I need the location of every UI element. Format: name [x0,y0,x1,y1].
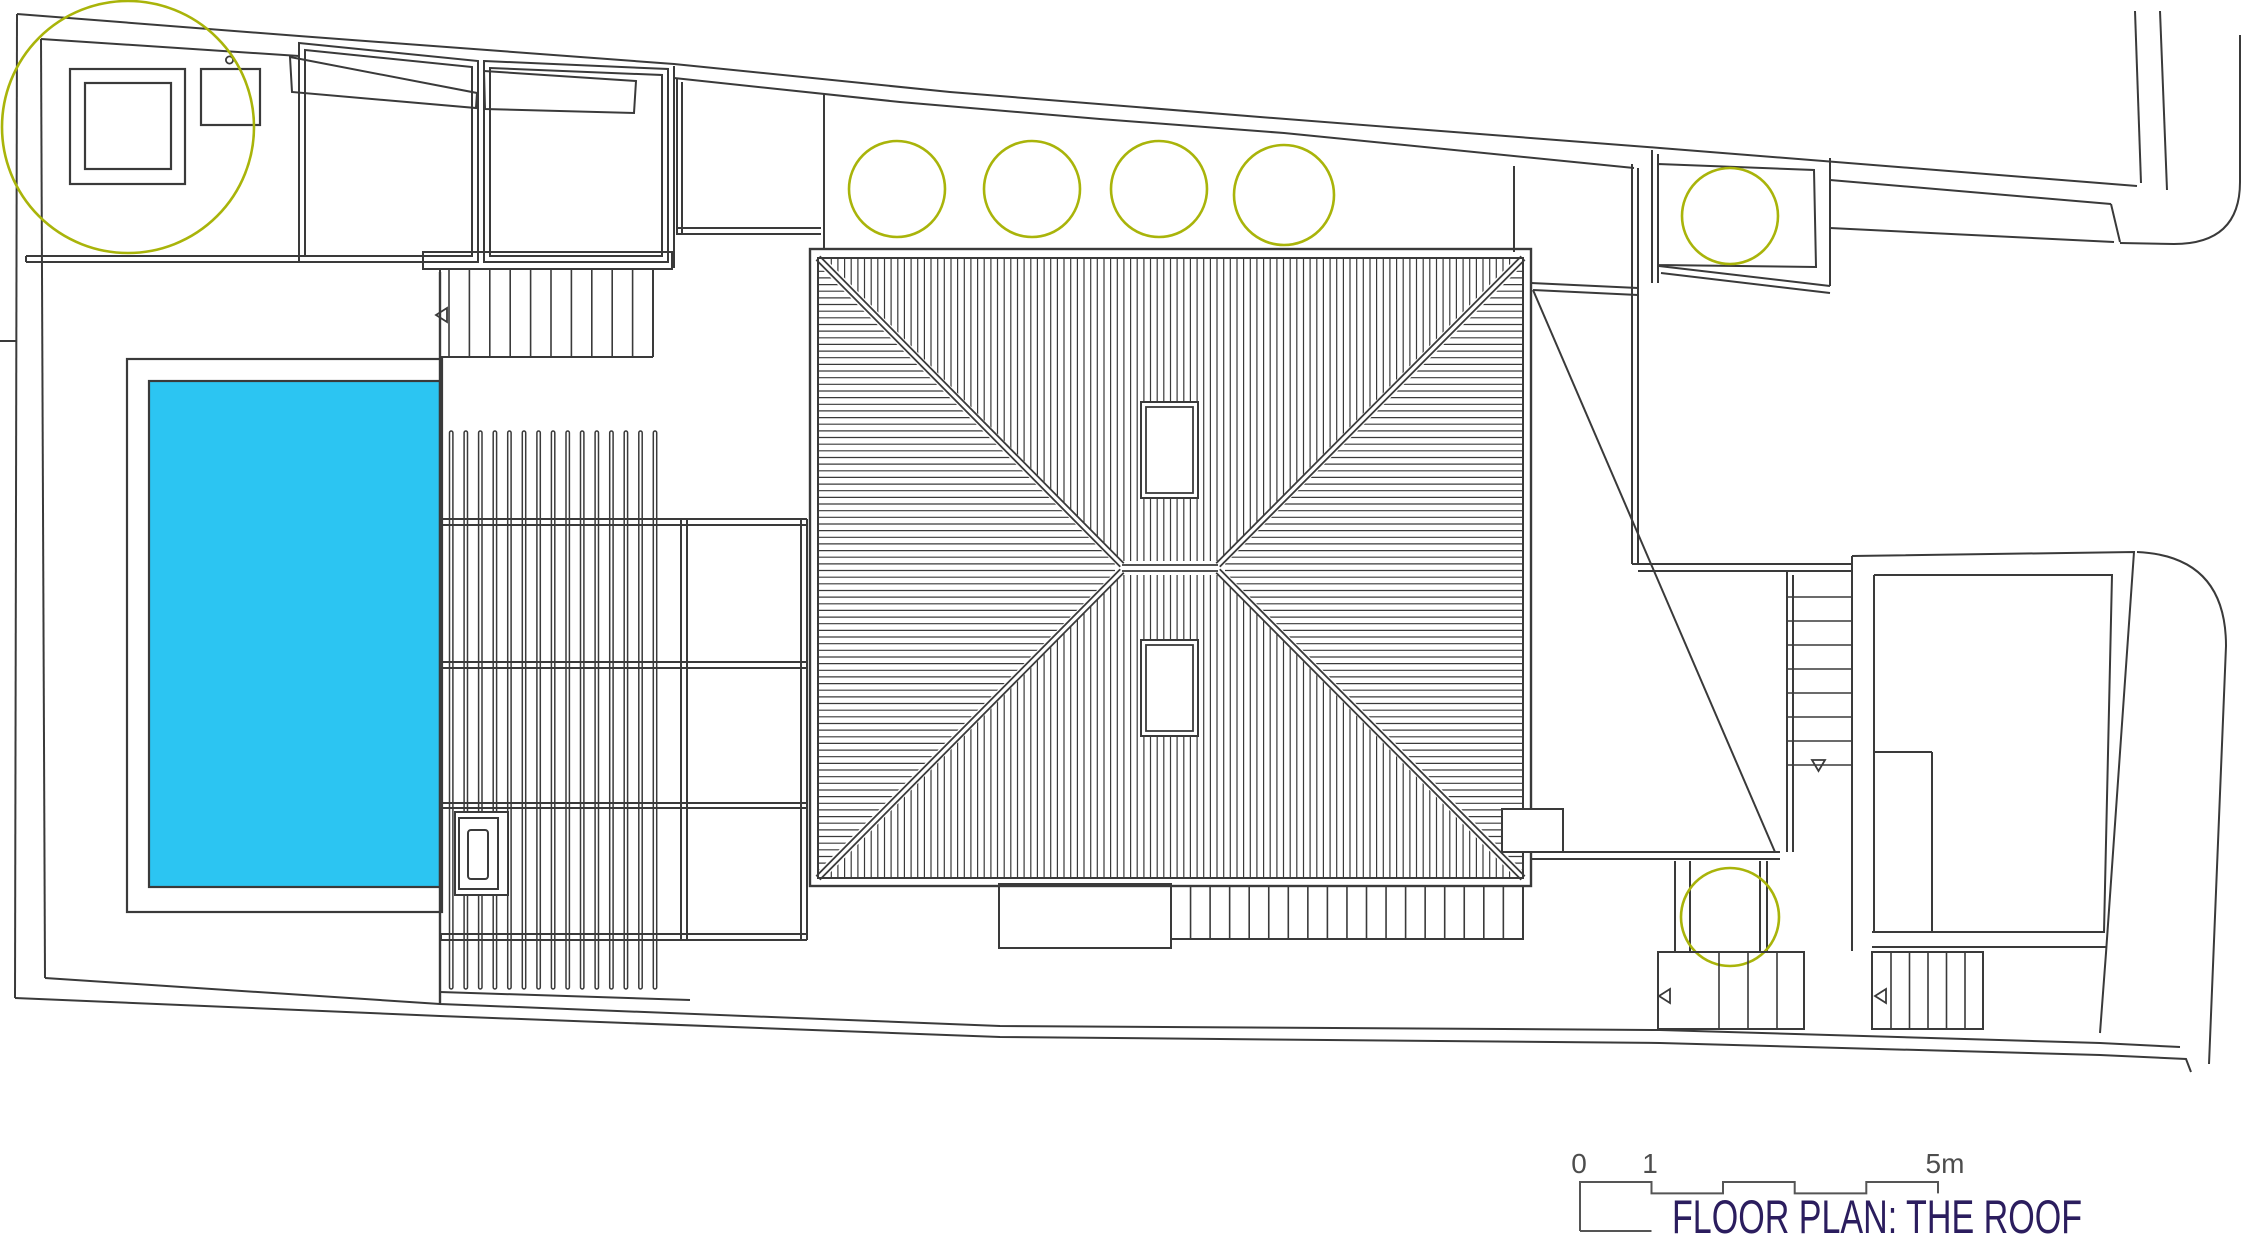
svg-text:5m: 5m [1926,1148,1965,1179]
svg-text:0: 0 [1571,1148,1587,1179]
svg-text:FLOOR PLAN: THE ROOF: FLOOR PLAN: THE ROOF [1672,1190,2082,1236]
svg-text:1: 1 [1642,1148,1658,1179]
